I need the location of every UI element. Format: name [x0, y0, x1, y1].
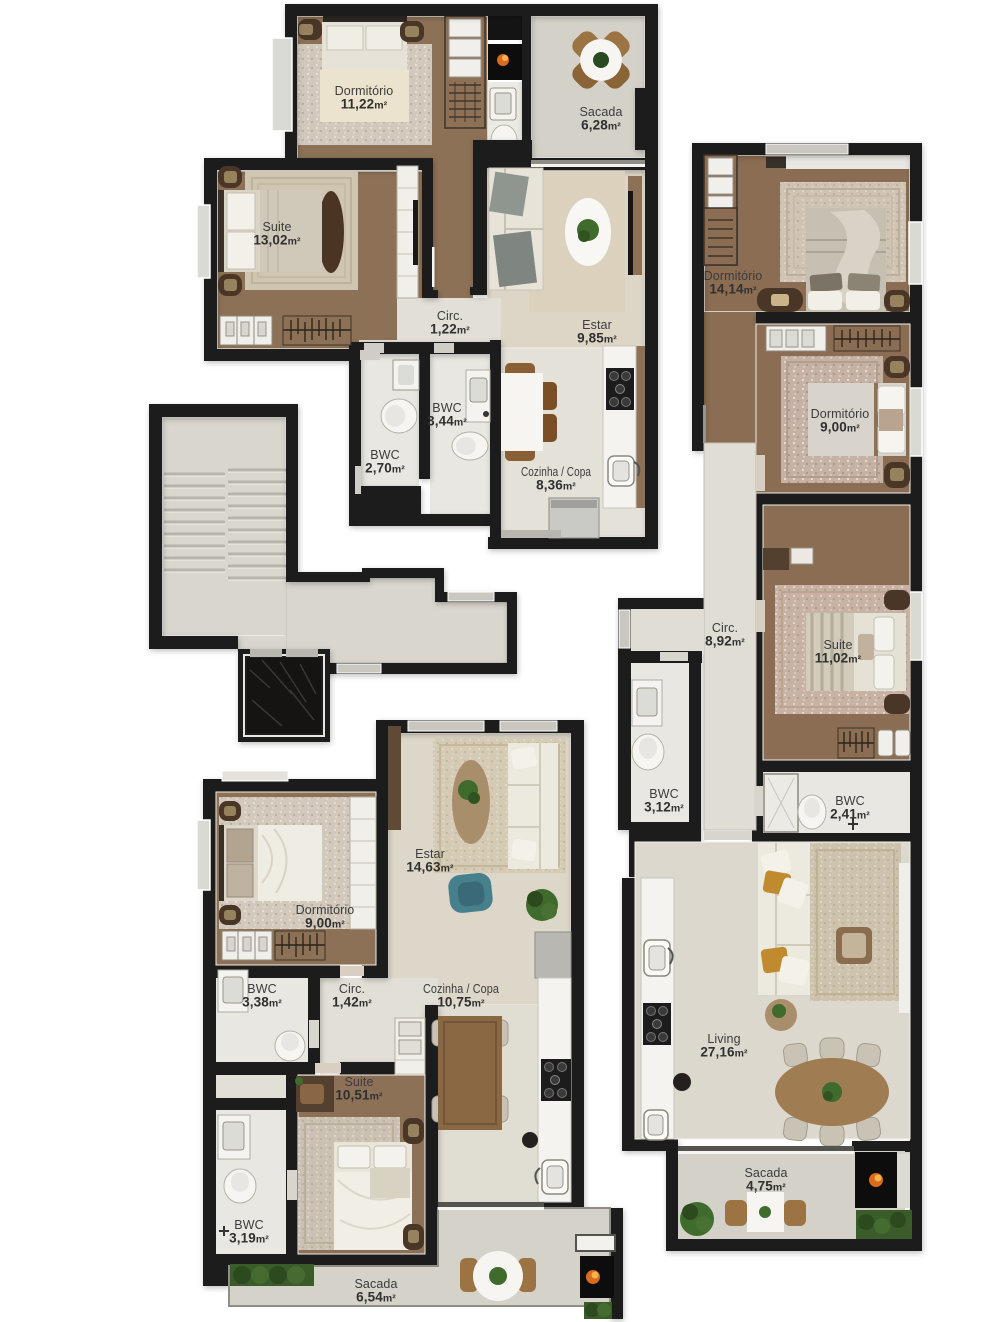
svg-text:27,16m²: 27,16m² — [700, 1045, 748, 1060]
svg-text:10,51m²: 10,51m² — [335, 1088, 383, 1103]
svg-text:3,12m²: 3,12m² — [644, 800, 684, 815]
svg-text:6,28m²: 6,28m² — [581, 118, 621, 133]
svg-text:14,63m²: 14,63m² — [406, 860, 454, 875]
svg-text:11,22m²: 11,22m² — [341, 97, 388, 112]
svg-text:2,41m²: 2,41m² — [830, 807, 870, 822]
svg-text:2,70m²: 2,70m² — [365, 461, 405, 476]
svg-text:3,44m²: 3,44m² — [427, 414, 467, 429]
svg-text:14,14m²: 14,14m² — [709, 282, 757, 297]
svg-text:9,85m²: 9,85m² — [577, 331, 617, 346]
svg-text:8,92m²: 8,92m² — [705, 634, 745, 649]
svg-text:9,00m²: 9,00m² — [820, 420, 860, 435]
svg-text:10,75m²: 10,75m² — [437, 995, 485, 1010]
svg-text:1,42m²: 1,42m² — [332, 995, 372, 1010]
svg-text:13,02m²: 13,02m² — [253, 233, 301, 248]
svg-text:3,19m²: 3,19m² — [229, 1231, 269, 1246]
svg-text:1,22m²: 1,22m² — [430, 322, 470, 337]
svg-text:4,75m²: 4,75m² — [746, 1179, 786, 1194]
svg-text:8,36m²: 8,36m² — [536, 478, 576, 493]
svg-text:11,02m²: 11,02m² — [815, 651, 862, 666]
svg-text:9,00m²: 9,00m² — [305, 916, 345, 931]
svg-text:3,38m²: 3,38m² — [242, 995, 282, 1010]
svg-text:6,54m²: 6,54m² — [356, 1290, 396, 1305]
